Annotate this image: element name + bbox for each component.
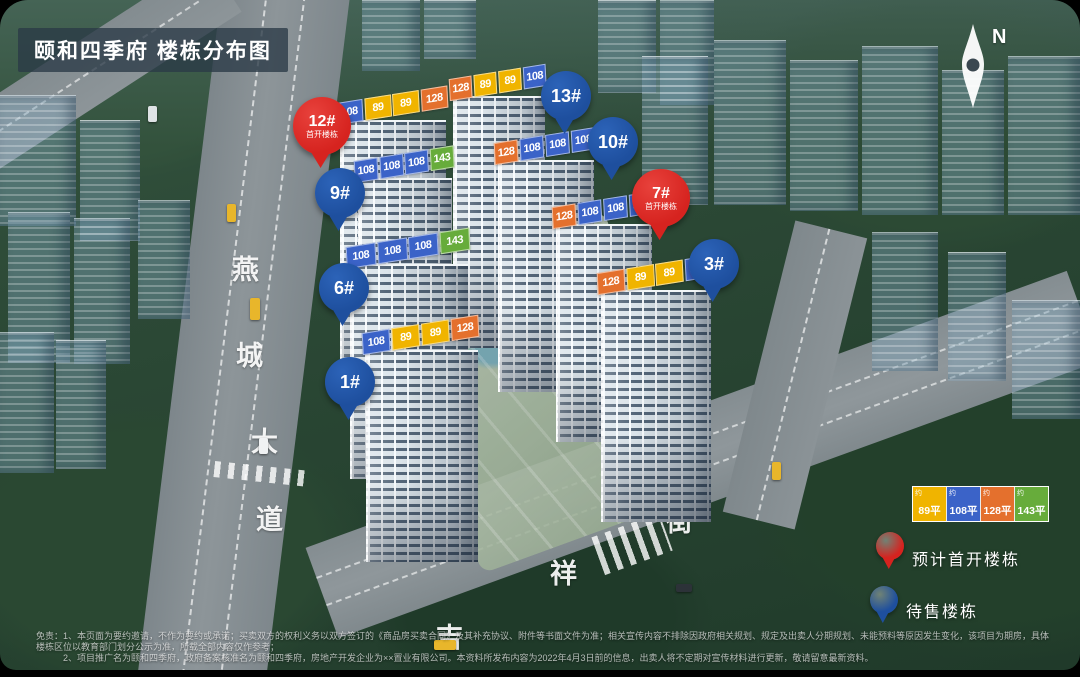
unit-area-label: 108 <box>603 195 628 221</box>
poster-stage: 1288989108108898912812810810810810810810… <box>0 0 1080 677</box>
pin-7-first-launch: 7#首开楼栋 <box>632 169 690 227</box>
pin-number-label: 13# <box>551 87 581 106</box>
background-tower <box>56 340 106 469</box>
pin-13: 13# <box>541 71 591 121</box>
legend-chip-label: 143平 <box>1015 503 1048 518</box>
lane-divider <box>756 229 831 521</box>
vehicle <box>772 462 781 480</box>
pin-6: 6# <box>319 263 369 313</box>
page-title: 颐和四季府 楼栋分布图 <box>18 28 288 72</box>
unit-area-label: 128 <box>420 86 447 112</box>
unit-area-label: 89 <box>655 260 683 286</box>
unit-area-label: 89 <box>421 319 450 345</box>
pin-sub-label: 首开楼栋 <box>645 202 677 211</box>
unit-area-label: 143 <box>429 145 453 171</box>
pin-number-label: 6# <box>334 279 354 298</box>
first-launch-pin-icon <box>876 532 904 560</box>
pin-number-label: 7# <box>652 185 670 202</box>
unit-area-label: 108 <box>577 199 602 225</box>
unit-area-label: 89 <box>392 90 419 116</box>
legend-chip-128: 约128平 <box>981 487 1014 521</box>
pin-3: 3# <box>689 239 739 289</box>
legend-marker-label: 待售楼栋 <box>906 598 978 622</box>
legend-chip-prefix: 约 <box>1017 488 1024 498</box>
background-tower <box>948 252 1006 381</box>
unit-area-label: 89 <box>626 264 654 290</box>
street-name-char: 道 <box>256 498 283 537</box>
tower-facade <box>366 350 478 562</box>
vehicle <box>148 106 157 122</box>
vehicle <box>250 298 260 320</box>
background-tower <box>872 232 938 371</box>
pin-number-label: 10# <box>598 133 628 152</box>
legend-chip-label: 128平 <box>981 503 1014 518</box>
background-tower <box>714 40 786 205</box>
pin-number-label: 3# <box>704 255 724 274</box>
legend-marker-label: 预计首开楼栋 <box>912 546 1020 570</box>
unit-area-label: 89 <box>473 72 497 98</box>
background-tower <box>138 200 190 319</box>
street-name-char: 祥 <box>550 552 577 591</box>
unit-area-label: 108 <box>379 153 403 179</box>
background-tower <box>790 60 858 211</box>
legend-chip-143: 约143平 <box>1015 487 1048 521</box>
legend-chip-prefix: 约 <box>949 488 956 498</box>
background-tower <box>1012 300 1080 419</box>
legend-chip-prefix: 约 <box>915 488 922 498</box>
legend-chip-label: 108平 <box>947 503 980 518</box>
legend-chip-label: 89平 <box>913 503 946 518</box>
compass-north-label: N <box>992 26 1006 49</box>
unit-area-label: 128 <box>449 75 473 101</box>
background-tower <box>0 95 76 226</box>
compass-needle-icon <box>956 24 990 108</box>
unit-area-label: 108 <box>377 238 407 265</box>
unit-area-label: 128 <box>451 315 480 341</box>
disclaimer-line-1: 免责：1、本页面为要约邀请，不作为要约或承诺；买卖双方的权利义务以双方签订的《商… <box>36 631 1052 653</box>
street-name-char: 城 <box>236 334 263 373</box>
disclaimer-line-2: 2、项目推广名为颐和四季府，政府备案核准名为颐和四季府，房地产开发企业为××置业… <box>36 653 1052 664</box>
for-sale-pin-icon <box>870 586 898 614</box>
pin-9: 9# <box>315 168 365 218</box>
pin-number-label: 1# <box>340 373 360 392</box>
pin-number-label: 12# <box>309 113 336 130</box>
legend-chip-prefix: 约 <box>983 488 990 498</box>
background-tower <box>424 0 476 59</box>
vehicle <box>227 204 236 222</box>
legend-unit-areas: 约89平约108平约128平约143平 <box>912 486 1049 522</box>
unit-area-label: 108 <box>404 149 428 175</box>
legend-chip-89: 约89平 <box>913 487 946 521</box>
disclaimer: 免责：1、本页面为要约邀请，不作为要约或承诺；买卖双方的权利义务以双方签订的《商… <box>36 631 1052 664</box>
unit-area-label: 143 <box>439 228 469 255</box>
pin-number-label: 9# <box>330 184 350 203</box>
unit-area-label: 89 <box>364 94 391 120</box>
building-1: 1088989128 <box>366 350 478 562</box>
pin-10: 10# <box>588 117 638 167</box>
vehicle <box>676 584 692 592</box>
tower-facade <box>601 290 711 522</box>
pin-12-first-launch: 12#首开楼栋 <box>293 97 351 155</box>
unit-area-label: 128 <box>597 269 625 295</box>
background-tower <box>862 46 938 215</box>
unit-area-label: 108 <box>519 135 544 161</box>
background-tower <box>0 332 54 473</box>
pin-sub-label: 首开楼栋 <box>306 130 338 139</box>
unit-area-label: 108 <box>408 233 438 260</box>
vehicle <box>259 438 268 454</box>
unit-area-label: 128 <box>494 139 519 165</box>
building-3: 1288989108 <box>601 290 711 522</box>
street-name-char: 燕 <box>232 248 259 287</box>
compass: N <box>956 24 1026 108</box>
legend-chip-108: 约108平 <box>947 487 980 521</box>
background-tower <box>362 0 420 71</box>
unit-area-label: 108 <box>362 329 391 355</box>
unit-area-label: 128 <box>552 203 577 229</box>
pin-1: 1# <box>325 357 375 407</box>
unit-area-label: 89 <box>391 324 420 350</box>
unit-area-label: 89 <box>498 68 522 94</box>
aerial-photo: 1288989108108898912812810810810810810810… <box>0 0 1080 670</box>
